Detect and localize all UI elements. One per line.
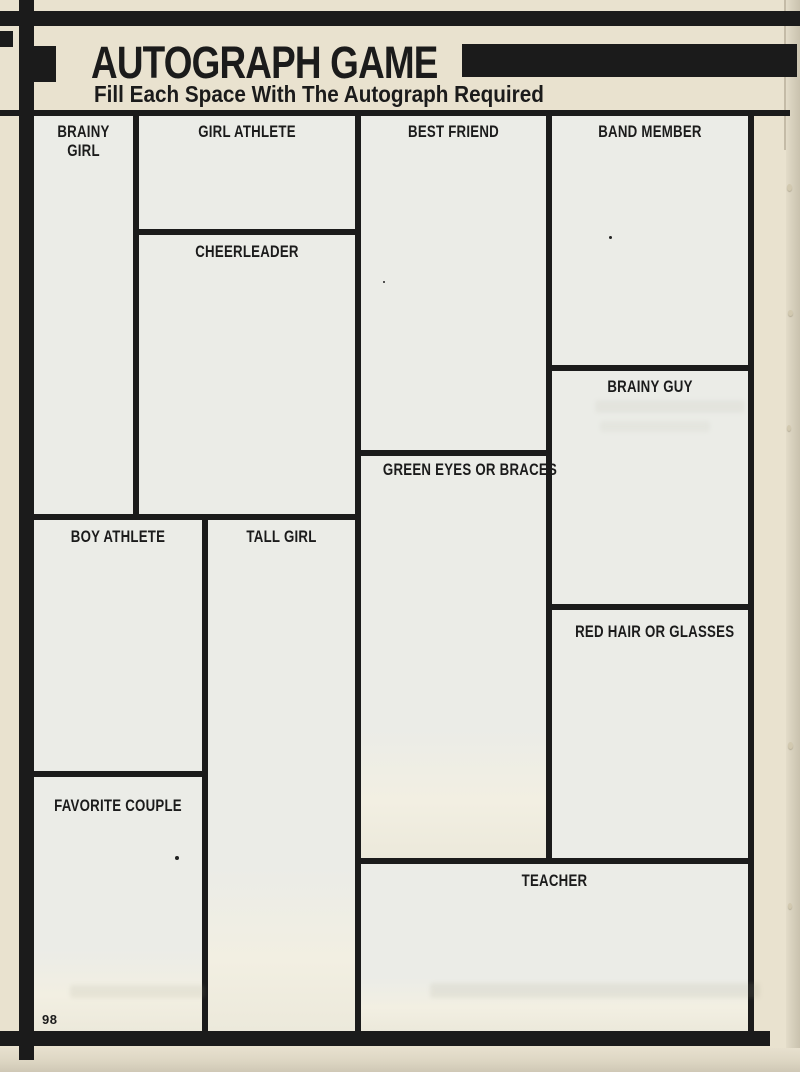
- autograph-box-girl-athlete[interactable]: GIRL ATHLETE: [139, 116, 355, 229]
- autograph-grid: BRAINY GIRL GIRL ATHLETE CHEERLEADER BES…: [19, 110, 754, 1031]
- paper-blemish: [787, 184, 792, 191]
- bleed-through-smudge: [430, 983, 760, 998]
- box-label: BAND MEMBER: [574, 116, 727, 141]
- box-label: BRAINY GIRL: [45, 116, 122, 160]
- autograph-box-red-hair-or-glasses[interactable]: RED HAIR OR GLASSES: [552, 610, 748, 858]
- page-bottom-edge: [0, 1048, 800, 1072]
- scanned-magazine-page: AUTOGRAPH GAME Fill Each Space With The …: [0, 0, 800, 1072]
- bottom-black-bar: [0, 1031, 770, 1046]
- page-title: AUTOGRAPH GAME: [91, 40, 438, 85]
- autograph-box-brainy-girl[interactable]: BRAINY GIRL: [34, 116, 133, 514]
- box-label: RED HAIR OR GLASSES: [574, 610, 727, 641]
- paper-blemish: [788, 742, 793, 749]
- autograph-box-tall-girl[interactable]: TALL GIRL: [208, 520, 355, 1031]
- box-label: TALL GIRL: [224, 520, 339, 546]
- ink-speck: [609, 236, 612, 239]
- box-label: TEACHER: [404, 864, 706, 890]
- bleed-through-smudge: [70, 985, 205, 998]
- box-label: GIRL ATHLETE: [163, 116, 331, 141]
- page-number: 98: [42, 1012, 57, 1027]
- autograph-box-teacher[interactable]: TEACHER: [361, 864, 748, 1031]
- paper-blemish: [787, 425, 791, 431]
- page-subtitle: Fill Each Space With The Autograph Requi…: [94, 82, 544, 107]
- bleed-through-smudge: [600, 421, 710, 432]
- title-right-black-bar: [462, 44, 797, 77]
- autograph-box-boy-athlete[interactable]: BOY ATHLETE: [34, 520, 202, 771]
- autograph-box-best-friend[interactable]: BEST FRIEND: [361, 116, 546, 450]
- autograph-box-band-member[interactable]: BAND MEMBER: [552, 116, 748, 365]
- box-label: BOY ATHLETE: [52, 520, 183, 546]
- ink-speck: [383, 281, 385, 283]
- box-label: GREEN EYES OR BRACES: [381, 456, 525, 479]
- paper-blemish: [788, 903, 792, 909]
- title-left-black-block: [33, 46, 56, 82]
- top-black-bar: [0, 11, 800, 26]
- bleed-through-smudge: [595, 400, 745, 413]
- autograph-box-green-eyes-or-braces[interactable]: GREEN EYES OR BRACES: [361, 456, 546, 858]
- page-right-edge: [786, 0, 800, 1072]
- autograph-box-cheerleader[interactable]: CHEERLEADER: [139, 235, 355, 514]
- ink-speck: [175, 856, 179, 860]
- box-label: BEST FRIEND: [381, 116, 525, 141]
- left-edge-black-square: [0, 31, 13, 47]
- box-label: BRAINY GUY: [574, 371, 727, 396]
- paper-blemish: [788, 310, 793, 316]
- box-label: CHEERLEADER: [163, 235, 331, 261]
- box-label: FAVORITE COUPLE: [52, 777, 183, 815]
